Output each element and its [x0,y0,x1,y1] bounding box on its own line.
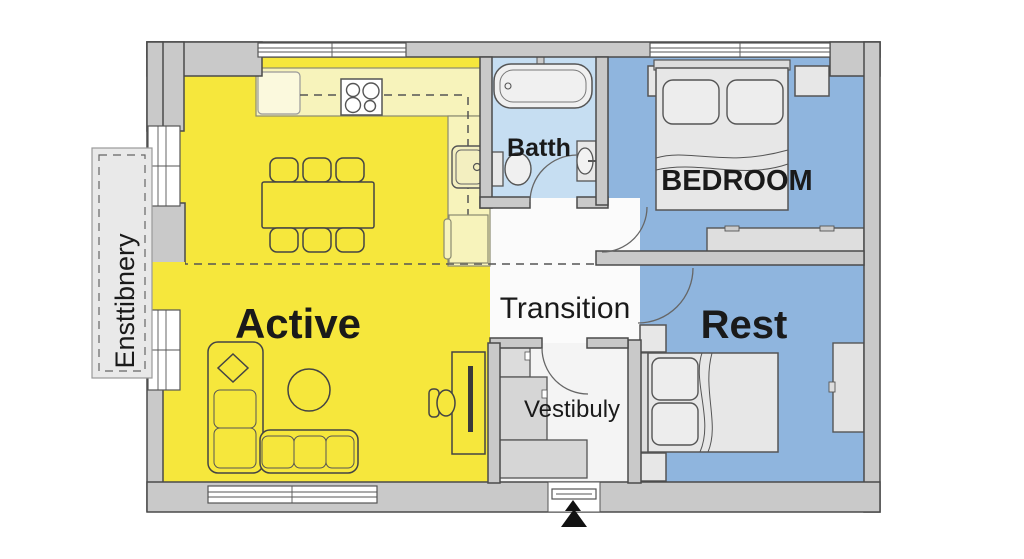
window-bedroom [650,43,830,57]
dining-chair-icon [336,158,364,182]
window-living [208,486,377,503]
label-transition: Transition [500,292,631,325]
label-vestibule: Vestibuly [524,396,620,423]
label-balcony: Ensttibnery [110,233,140,369]
wall-bedroom-rest [596,251,864,265]
dining-chair-icon [270,158,298,182]
wardrobe-handle [829,382,835,392]
window-left-lower [148,310,180,390]
label-bath: Batth [507,134,571,162]
desk-chair-icon [437,390,455,416]
dining-table-icon [262,182,374,228]
dresser-handle [725,226,739,231]
label-rest: Rest [701,303,788,347]
window-left-upper [148,126,180,206]
label-bedroom: BEDROOM [661,165,812,197]
closet-icon [492,440,587,478]
wall-right [864,42,880,512]
wall-kitchen-bath [480,57,492,208]
dining-set [262,158,374,252]
pillow-icon [652,403,698,445]
dresser-handle [820,226,834,231]
nightstand-icon [795,66,829,96]
wardrobe-icon [833,343,864,432]
closet-handle [525,352,530,360]
dining-chair-icon [336,228,364,252]
entrance [548,482,600,527]
wall-vestibule-left [488,343,500,483]
floor-plan-drawing: Active Transition Rest BEDROOM Batth Ves… [0,0,1024,559]
dining-chair-icon [303,158,331,182]
kitchen-appliance [444,215,488,263]
wall-vestibule-top-right [587,338,628,348]
stove-icon [341,79,382,115]
wall-rest-vestibule [628,340,641,483]
window-kitchen [258,43,406,57]
monitor-icon [468,366,473,432]
toilet-tank [492,152,503,186]
wall-left-mid-block [147,203,185,263]
nightstand-icon [640,325,666,352]
pillow-icon [663,80,719,124]
pillow-icon [652,358,698,400]
dining-chair-icon [303,228,331,252]
dining-chair-icon [270,228,298,252]
coffee-table-icon [288,369,330,411]
kitchen-cabinet [258,72,300,114]
balcony-opening [149,262,185,310]
wall-bath-south-left [480,197,530,208]
pillow-icon [727,80,783,124]
label-active: Active [235,300,361,347]
wall-bath-bedroom [596,57,608,205]
floor-plan-canvas: Active Transition Rest BEDROOM Batth Ves… [0,0,1024,559]
nightstand-icon [640,453,666,481]
